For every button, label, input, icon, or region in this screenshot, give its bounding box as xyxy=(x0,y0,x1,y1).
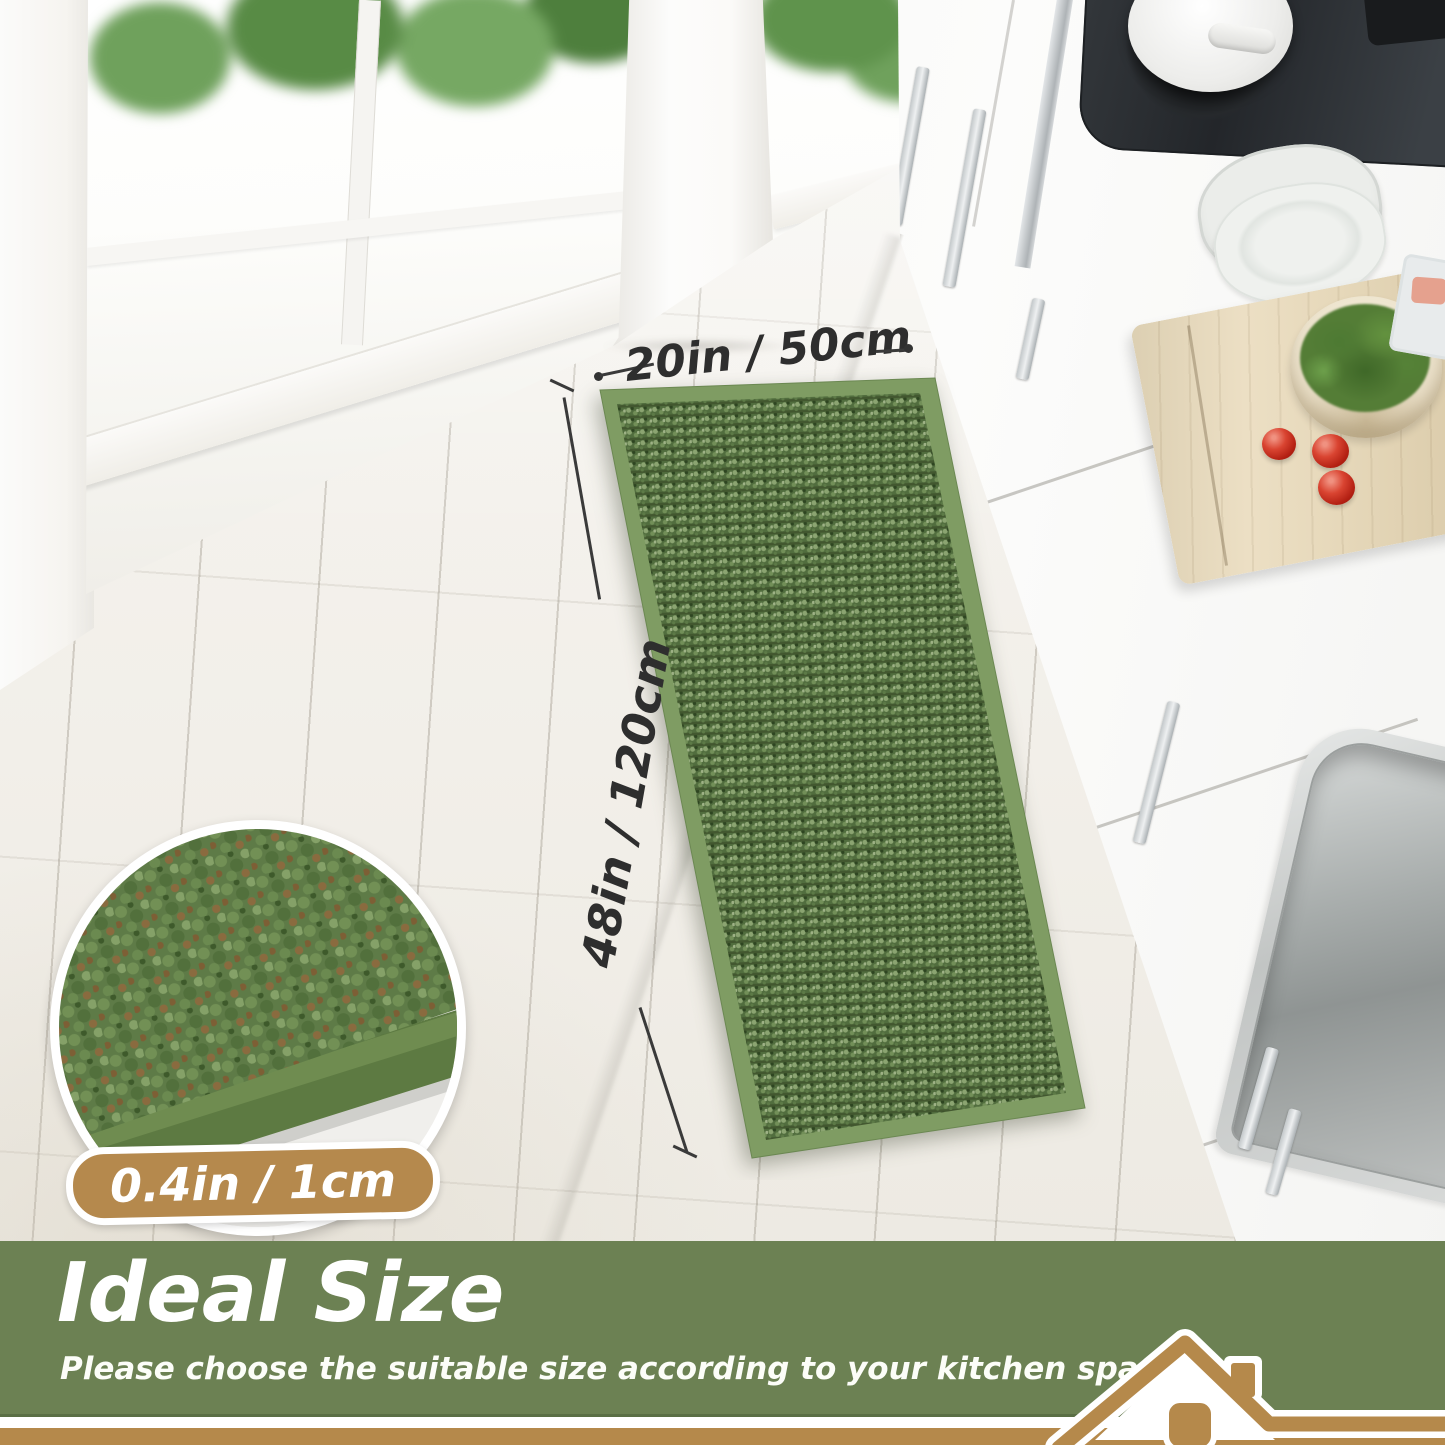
cabinet-handle xyxy=(942,108,986,288)
product-image: 20in / 50cm 48in / 120cm xyxy=(0,0,1445,1445)
cherry-tomato xyxy=(1318,470,1355,505)
banner-subtitle: Please choose the suitable size accordin… xyxy=(60,1351,1178,1387)
width-dim-dot-right xyxy=(904,344,913,353)
cooktop-chrome-edge xyxy=(1015,0,1074,269)
cherry-tomato xyxy=(1312,434,1349,468)
cabinet-handle xyxy=(1133,701,1181,845)
food-item xyxy=(1411,277,1445,305)
black-pan xyxy=(1363,0,1445,46)
left-cabinet-panel xyxy=(0,0,94,690)
food-tray xyxy=(1388,253,1445,361)
house-icon xyxy=(1045,1315,1445,1445)
thickness-badge: 0.4in / 1cm xyxy=(65,1140,441,1226)
cherry-tomato xyxy=(1262,428,1296,460)
banner-title: Ideal Size xyxy=(57,1253,504,1335)
thickness-badge-label: 0.4in / 1cm xyxy=(109,1153,396,1213)
sink-basin xyxy=(1229,733,1445,1198)
board-groove xyxy=(1187,325,1228,565)
